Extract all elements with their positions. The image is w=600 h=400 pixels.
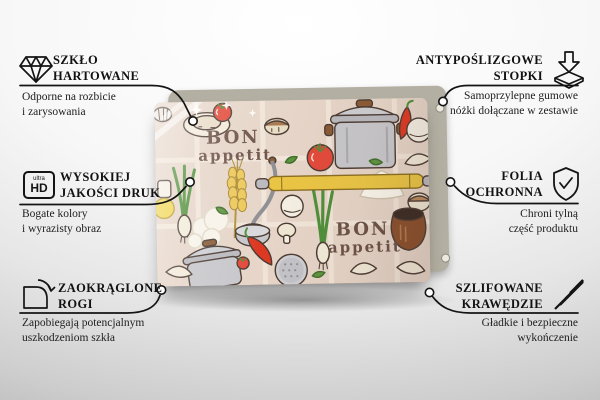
connector-dot [189,117,197,125]
diamond-icon [19,54,53,89]
feature-title: ZAOKRĄGLONE ROGI [58,281,162,312]
connector-dot [446,178,454,186]
connector-dot [439,97,447,105]
feature-title: ANTYPOŚLIZGOWE STOPKI [416,53,543,84]
feature-desc: Zapobiegają potencjalnym uszkodzeniom sz… [22,316,144,345]
feature-desc: Odporne na rozbicie i zarysowania [22,90,116,119]
feature-desc: Bogate kolory i wyrazisty obraz [22,207,101,236]
feature-title: SZKŁO HARTOWANE [53,53,139,84]
polished-edges-icon [551,278,585,315]
feature-title: WYSOKIEJ JAKOŚCI DRUK [60,170,160,201]
connector-dot [186,178,194,186]
rounded-corner-icon [21,278,57,315]
product-infographic: BON appetit BON appetit [0,0,600,400]
ultra-hd-icon: ultra HD [23,171,55,199]
feature-desc: Samoprzylepne gumowe nóżki dołączane w z… [450,89,578,118]
feature-title: FOLIA OCHRONNA [465,169,543,200]
shield-check-icon [550,166,582,207]
feature-title: SZLIFOWANE KRAWĘDZIE [456,281,543,312]
connector-dot [425,288,433,296]
feature-desc: Gładkie i bezpieczne wykończenie [482,316,578,345]
feature-desc: Chroni tylną część produktu [509,207,578,236]
